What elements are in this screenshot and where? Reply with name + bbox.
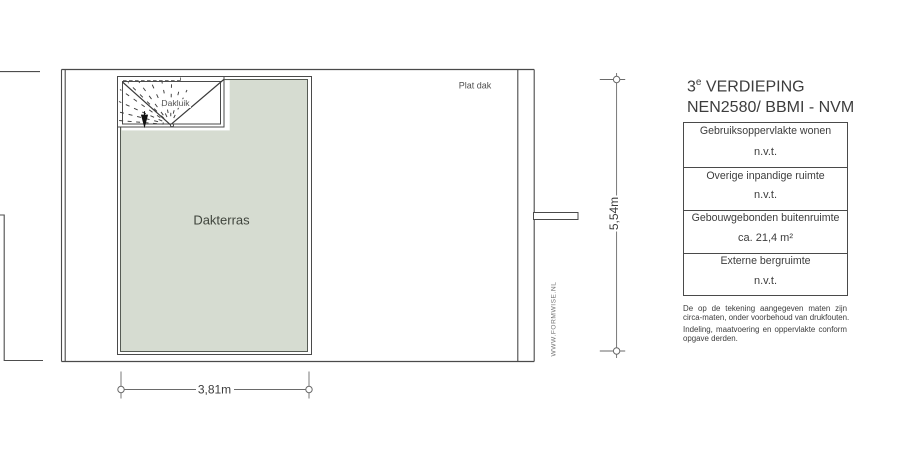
svg-text:3,81m: 3,81m <box>198 383 231 397</box>
svg-text:5,54m: 5,54m <box>607 197 621 230</box>
svg-text:Dakterras: Dakterras <box>193 213 250 228</box>
svg-text:Plat dak: Plat dak <box>459 80 492 90</box>
svg-text:Dakluik: Dakluik <box>161 98 190 108</box>
svg-text:WWW.FORMWISE.NL: WWW.FORMWISE.NL <box>551 282 558 357</box>
